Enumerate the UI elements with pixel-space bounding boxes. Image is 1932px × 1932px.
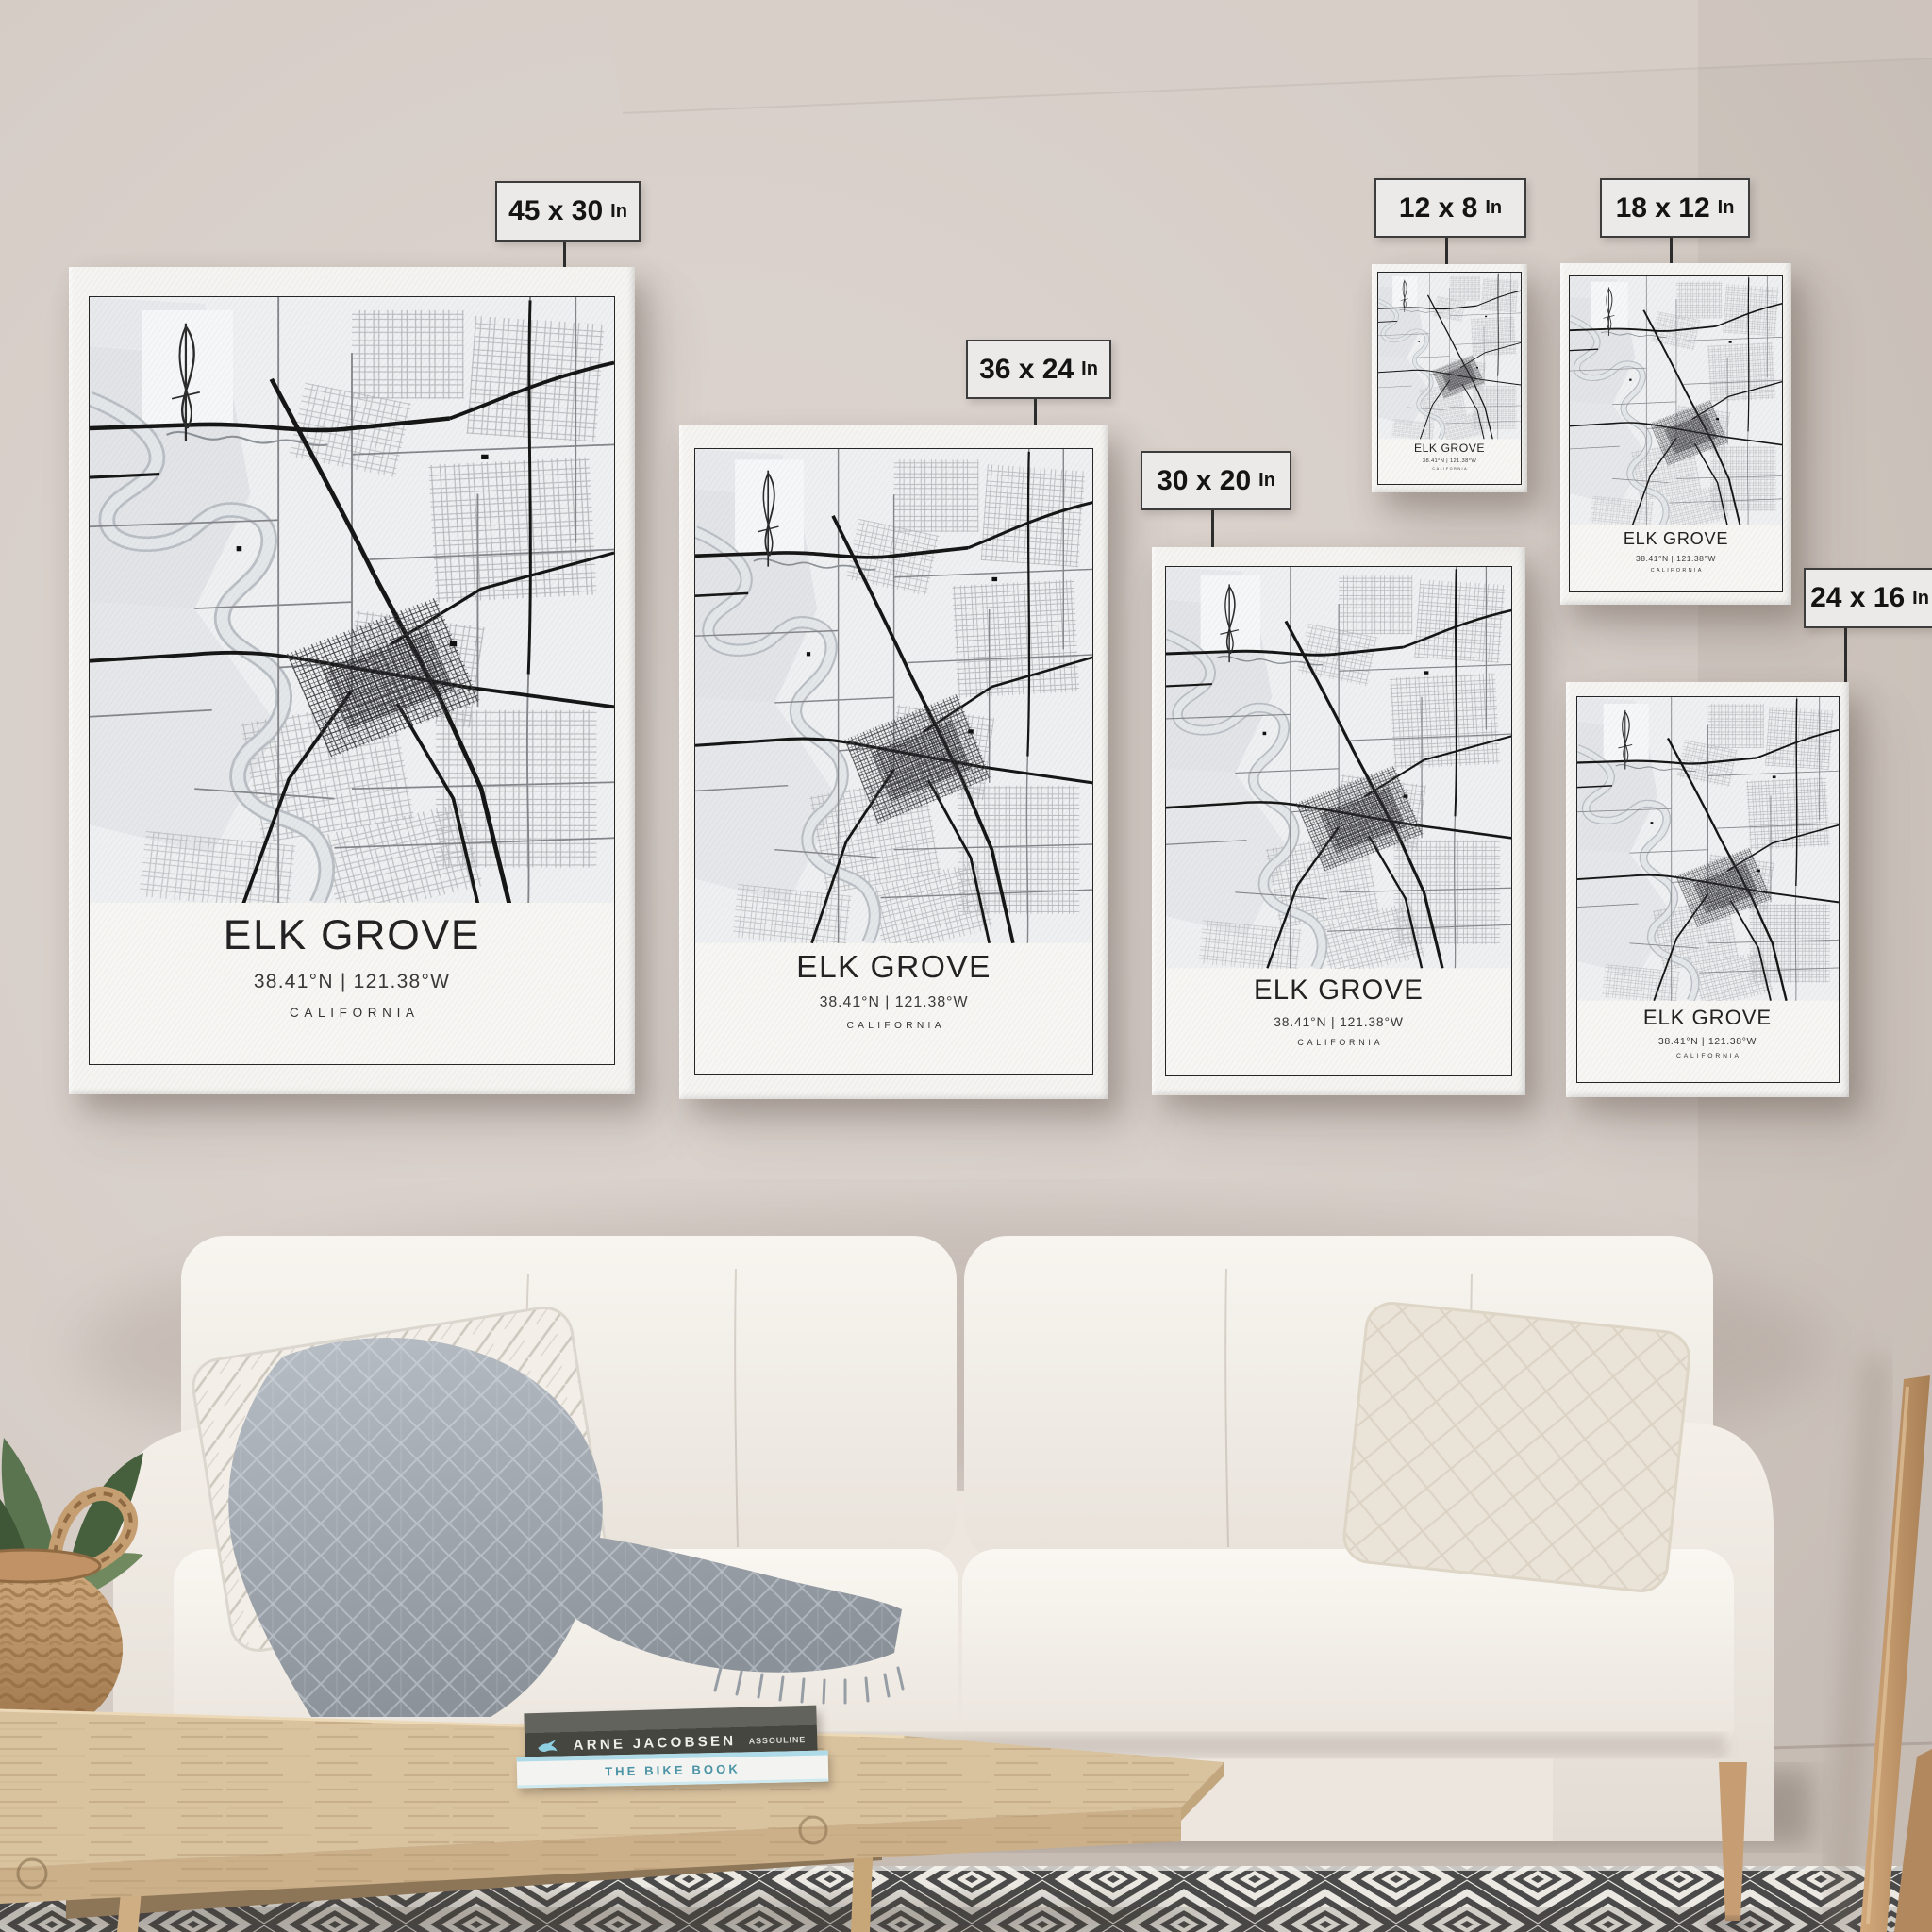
size-text: 36 x 24 [979,354,1074,386]
city-map [90,297,614,904]
size-unit: In [1485,197,1502,219]
poster-region: CALIFORNIA [842,1021,945,1031]
city-map [1378,273,1521,439]
size-label-18x12: 18 x 12In [1600,178,1750,238]
size-label-24x16: 24 x 16In [1804,568,1932,628]
size-unit: In [610,201,627,223]
city-map [1166,567,1511,968]
poster-coordinates: 38.41°N | 121.38°W [1274,1014,1404,1029]
label-connector [1670,234,1673,263]
size-unit: In [1258,470,1275,491]
size-text: 30 x 20 [1157,465,1251,497]
poster-36x24: ELK GROVE 38.41°N | 121.38°W CALIFORNIA [679,425,1108,1099]
poster-30x20: ELK GROVE 38.41°N | 121.38°W CALIFORNIA [1152,547,1525,1095]
poster-45x30: ELK GROVE 38.41°N | 121.38°W CALIFORNIA [69,267,635,1094]
poster-region: CALIFORNIA [1294,1038,1384,1047]
poster-18x12: ELK GROVE 38.41°N | 121.38°W CALIFORNIA [1560,263,1791,605]
size-text: 18 x 12 [1616,192,1710,225]
poster-title: ELK GROVE [1643,1006,1772,1030]
book-the-bike-book: THE BIKE BOOK [517,1751,829,1789]
poster-24x16: ELK GROVE 38.41°N | 121.38°W CALIFORNIA [1566,682,1849,1097]
poster-coordinates: 38.41°N | 121.38°W [820,994,969,1011]
label-connector [1445,234,1448,264]
poster-coordinates: 38.41°N | 121.38°W [1636,554,1716,563]
poster-title: ELK GROVE [796,950,991,986]
poster-title: ELK GROVE [1254,974,1424,1007]
size-unit: In [1718,197,1735,219]
poster-frame: ELK GROVE 38.41°N | 121.38°W CALIFORNIA [89,296,615,1066]
city-map [1577,697,1839,1001]
poster-region: CALIFORNIA [284,1006,419,1020]
book-publisher: ASSOULINE [749,1735,807,1746]
poster-region: CALIFORNIA [1648,568,1703,574]
size-text: 24 x 16 [1810,582,1905,614]
diamond-pillow [1341,1301,1691,1593]
city-map [695,449,1092,943]
poster-region: CALIFORNIA [1431,467,1468,471]
poster-frame: ELK GROVE 38.41°N | 121.38°W CALIFORNIA [1165,566,1512,1075]
living-room-mockup: ELK GROVE 38.41°N | 121.38°W CALIFORNIA … [0,0,1932,1932]
bird-logo-icon [536,1738,560,1756]
poster-coordinates: 38.41°N | 121.38°W [1658,1036,1757,1047]
label-connector [563,238,566,267]
size-label-12x8: 12 x 8In [1374,178,1526,238]
poster-frame: ELK GROVE 38.41°N | 121.38°W CALIFORNIA [1377,272,1522,484]
poster-12x8: ELK GROVE 38.41°N | 121.38°W CALIFORNIA [1372,264,1527,492]
size-unit: In [1081,358,1098,380]
label-connector [1844,625,1847,682]
size-text: 12 x 8 [1399,192,1477,225]
poster-coordinates: 38.41°N | 121.38°W [1423,458,1476,464]
size-label-30x20: 30 x 20In [1141,451,1291,510]
poster-frame: ELK GROVE 38.41°N | 121.38°W CALIFORNIA [1569,275,1784,593]
size-label-36x24: 36 x 24In [966,340,1111,399]
book-title: THE BIKE BOOK [605,1761,741,1778]
label-connector [1211,507,1214,547]
poster-title: ELK GROVE [1414,441,1485,455]
poster-coordinates: 38.41°N | 121.38°W [254,971,450,993]
city-map [1570,276,1783,525]
poster-title: ELK GROVE [224,912,481,959]
book-title: ARNE JACOBSEN [560,1733,749,1755]
size-text: 45 x 30 [508,195,603,227]
poster-title: ELK GROVE [1624,529,1728,549]
size-unit: In [1912,588,1929,609]
label-connector [1034,395,1037,425]
poster-frame: ELK GROVE 38.41°N | 121.38°W CALIFORNIA [1576,696,1840,1082]
size-label-45x30: 45 x 30In [495,181,641,241]
poster-frame: ELK GROVE 38.41°N | 121.38°W CALIFORNIA [694,448,1093,1075]
poster-region: CALIFORNIA [1674,1053,1741,1059]
